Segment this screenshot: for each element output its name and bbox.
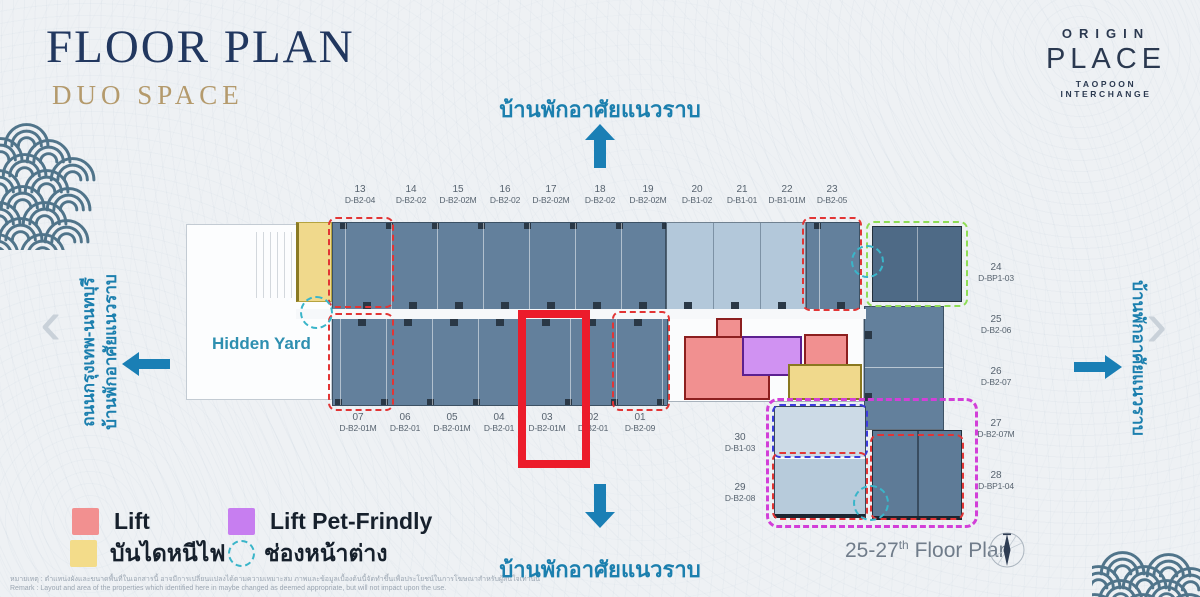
unit-label-01: 01D-B2-09 bbox=[612, 412, 668, 433]
highlight-box-unit-03 bbox=[518, 310, 590, 468]
dashed-outline-unit-30 bbox=[772, 404, 868, 458]
dashed-outline-unit-13 bbox=[328, 217, 394, 308]
logo-tagline: TAOPOON INTERCHANGE bbox=[1028, 79, 1184, 99]
legend-label-window: ช่องหน้าต่าง bbox=[264, 540, 388, 567]
compass-icon bbox=[988, 531, 1026, 569]
brand-logo: ORIGIN PLACE TAOPOON INTERCHANGE bbox=[1028, 26, 1184, 99]
logo-name: PLACE bbox=[1028, 43, 1184, 76]
fire-stairs-left bbox=[296, 222, 332, 302]
page-title: FLOOR PLAN bbox=[46, 20, 355, 74]
window-opening-icon-right bbox=[851, 245, 884, 278]
unit-label-17: 17D-B2-02M bbox=[523, 184, 579, 205]
legend-swatch-lift-pet bbox=[228, 508, 255, 535]
window-opening-icon-left bbox=[300, 296, 333, 329]
unit-label-29: 29D-B2-08 bbox=[710, 482, 770, 503]
dashed-outline-unit-07 bbox=[328, 313, 394, 411]
surrounding-label-bottom: บ้านพักอาศัยแนวราบ bbox=[450, 552, 750, 587]
arrow-down-icon bbox=[585, 484, 615, 528]
residence-label-left: บ้านพักอาศัยแนวราบ bbox=[100, 245, 122, 459]
unit-label-26: 26D-B2-07 bbox=[966, 366, 1026, 387]
dashed-outline-unit-01 bbox=[612, 311, 670, 411]
unit-label-28: 28D-BP1-04 bbox=[966, 470, 1026, 491]
unit-label-23: 23D-B2-05 bbox=[804, 184, 860, 205]
wave-pattern-bottom-right bbox=[1092, 546, 1200, 597]
chevron-left-watermark: ‹ bbox=[40, 290, 61, 354]
top-wing-units-20-22 bbox=[666, 222, 806, 310]
legend-window-icon bbox=[228, 540, 255, 567]
unit-label-27: 27D-B2-07M bbox=[966, 418, 1026, 439]
arrow-right-icon bbox=[1074, 355, 1122, 379]
road-label-left: ถนนกรุงเทพ-นนทบุรี bbox=[78, 245, 100, 459]
window-opening-icon-bottom bbox=[853, 485, 889, 521]
arrow-up-icon bbox=[585, 124, 615, 168]
surrounding-label-right: บ้านพักอาศัยแนวราบ bbox=[1126, 258, 1150, 458]
legend-swatch-fire-stairs bbox=[70, 540, 97, 567]
residence-label-right: บ้านพักอาศัยแนวราบ bbox=[1127, 258, 1149, 458]
unit-label-24: 24D-BP1-03 bbox=[966, 262, 1026, 283]
fire-stairs-core bbox=[788, 364, 862, 400]
legend-label-lift-pet: Lift Pet-Frindly bbox=[270, 508, 432, 535]
legend-swatch-lift bbox=[72, 508, 99, 535]
wave-pattern-left bbox=[0, 118, 112, 250]
floor-plan-range-label: 25-27th Floor Plan bbox=[845, 538, 1010, 563]
unit-label-25: 25D-B2-06 bbox=[966, 314, 1026, 335]
legend-label-lift: Lift bbox=[114, 508, 150, 535]
stair-hatch-lines bbox=[250, 232, 294, 298]
logo-brand: ORIGIN bbox=[1028, 26, 1184, 41]
legend-label-fire-stairs: บันไดหนีไฟ bbox=[110, 540, 226, 567]
hidden-yard-label: Hidden Yard bbox=[212, 334, 332, 354]
unit-label-13: 13D-B2-04 bbox=[332, 184, 388, 205]
surrounding-label-top: บ้านพักอาศัยแนวราบ bbox=[450, 92, 750, 127]
surrounding-label-left: ถนนกรุงเทพ-นนทบุรี บ้านพักอาศัยแนวราบ bbox=[77, 245, 123, 459]
arrow-left-icon bbox=[122, 352, 170, 376]
unit-label-30: 30D-B1-03 bbox=[710, 432, 770, 453]
page-subtitle: DUO SPACE bbox=[52, 80, 244, 111]
floor-plan-page: { "header": { "title": "FLOOR PLAN", "su… bbox=[0, 0, 1200, 597]
unit-label-19: 19D-B2-02M bbox=[620, 184, 676, 205]
